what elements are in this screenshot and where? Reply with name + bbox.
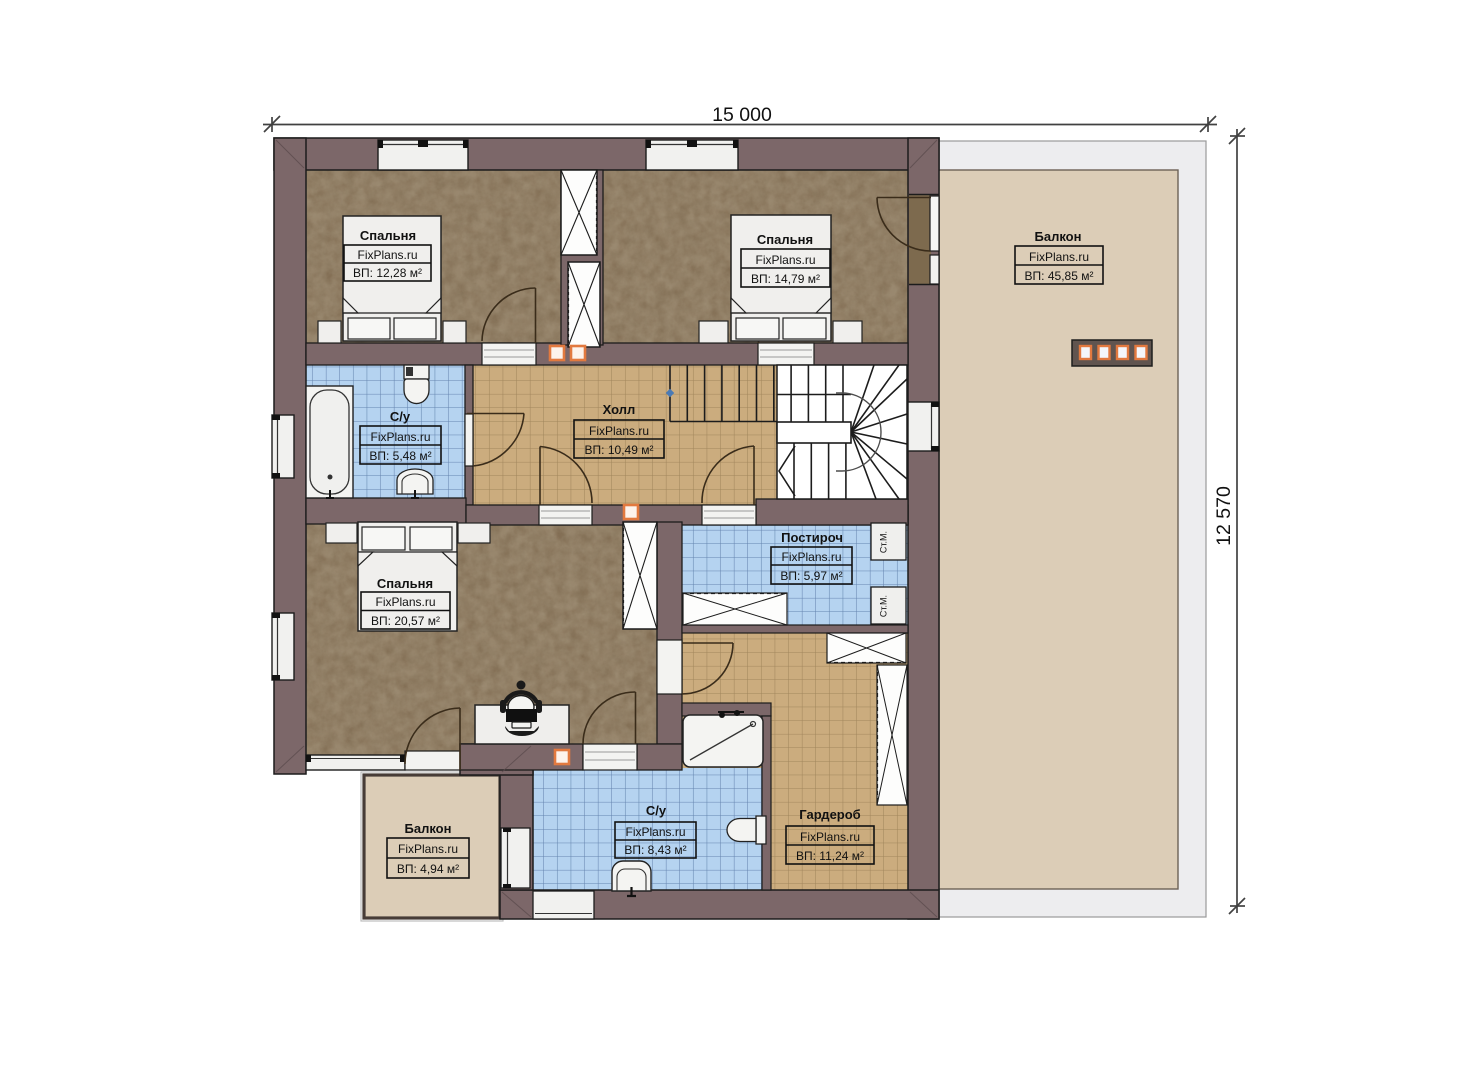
svg-text:Ст.М.: Ст.М.	[878, 595, 888, 617]
svg-text:ВП: 8,43 м²: ВП: 8,43 м²	[624, 843, 686, 857]
svg-text:ВП: 45,85 м²: ВП: 45,85 м²	[1025, 269, 1094, 283]
svg-text:FixPlans.ru: FixPlans.ru	[625, 825, 685, 839]
svg-text:ВП: 5,48 м²: ВП: 5,48 м²	[369, 449, 431, 463]
svg-text:ВП: 10,49 м²: ВП: 10,49 м²	[585, 443, 654, 457]
svg-text:FixPlans.ru: FixPlans.ru	[781, 550, 841, 564]
svg-text:Балкон: Балкон	[1035, 229, 1082, 244]
svg-text:FixPlans.ru: FixPlans.ru	[800, 830, 860, 844]
svg-text:Спальня: Спальня	[377, 576, 433, 591]
svg-text:15 000: 15 000	[712, 104, 772, 126]
svg-text:С/у: С/у	[646, 803, 667, 818]
svg-text:Холл: Холл	[603, 402, 636, 417]
svg-text:Гардероб: Гардероб	[799, 807, 860, 822]
svg-text:ВП: 5,97 м²: ВП: 5,97 м²	[780, 569, 842, 583]
svg-text:ВП: 11,24 м²: ВП: 11,24 м²	[796, 849, 864, 863]
svg-text:ВП: 12,28 м²: ВП: 12,28 м²	[353, 266, 422, 280]
svg-text:ВП: 20,57 м²: ВП: 20,57 м²	[371, 614, 440, 628]
svg-text:FixPlans.ru: FixPlans.ru	[398, 842, 458, 856]
svg-text:Балкон: Балкон	[405, 821, 452, 836]
svg-text:FixPlans.ru: FixPlans.ru	[375, 595, 435, 609]
svg-text:Спальня: Спальня	[757, 232, 813, 247]
svg-text:Спальня: Спальня	[360, 228, 416, 243]
svg-text:12 570: 12 570	[1213, 486, 1235, 546]
svg-text:FixPlans.ru: FixPlans.ru	[370, 430, 430, 444]
svg-text:FixPlans.ru: FixPlans.ru	[1029, 250, 1089, 264]
svg-text:Ст.М.: Ст.М.	[878, 531, 888, 553]
svg-text:FixPlans.ru: FixPlans.ru	[589, 424, 649, 438]
svg-text:FixPlans.ru: FixPlans.ru	[357, 248, 417, 262]
svg-text:Постироч: Постироч	[781, 530, 843, 545]
svg-text:ВП: 4,94 м²: ВП: 4,94 м²	[397, 862, 459, 876]
svg-text:С/у: С/у	[390, 409, 411, 424]
svg-text:ВП: 14,79 м²: ВП: 14,79 м²	[751, 272, 820, 286]
svg-text:FixPlans.ru: FixPlans.ru	[755, 253, 815, 267]
